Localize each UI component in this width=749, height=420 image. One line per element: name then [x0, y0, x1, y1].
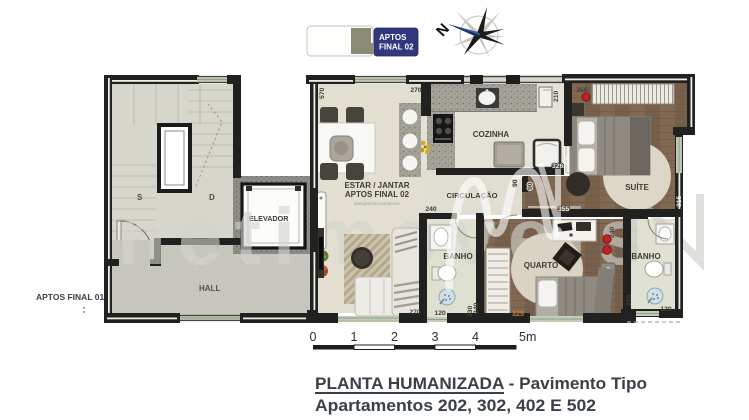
svg-text:Apartamentos 202, 302, 402 E 5: Apartamentos 202, 302, 402 E 502 [315, 396, 596, 415]
svg-text:FINAL 02: FINAL 02 [379, 43, 414, 52]
svg-text:120: 120 [660, 306, 672, 313]
svg-text:APTOS: APTOS [379, 33, 407, 42]
svg-text:570: 570 [319, 87, 326, 99]
svg-text:QUARTO: QUARTO [524, 261, 559, 270]
svg-text:240: 240 [425, 206, 437, 213]
svg-text:APTOS FINAL 01: APTOS FINAL 01 [36, 292, 104, 302]
svg-text:270: 270 [410, 87, 422, 94]
svg-text:90: 90 [527, 182, 534, 190]
svg-text:HALL: HALL [199, 284, 220, 293]
svg-text:325: 325 [512, 309, 524, 318]
svg-text:2: 2 [391, 330, 398, 344]
svg-text:255: 255 [576, 87, 588, 94]
svg-text:90: 90 [512, 179, 519, 187]
svg-text:PLANTA HUMANIZADA - Pavimento: PLANTA HUMANIZADA - Pavimento Tipo [315, 374, 647, 393]
svg-text:225: 225 [626, 294, 633, 306]
svg-text:SUÍTE: SUÍTE [625, 183, 649, 192]
svg-text:COZINHA: COZINHA [473, 130, 510, 139]
svg-text:355: 355 [558, 206, 570, 213]
svg-text:315: 315 [676, 195, 683, 207]
svg-text:3: 3 [432, 330, 439, 344]
svg-text:0: 0 [310, 330, 317, 344]
svg-text:CIRCULAÇÃO: CIRCULAÇÃO [446, 191, 497, 200]
svg-text:210: 210 [553, 90, 560, 102]
svg-text:270: 270 [409, 309, 421, 316]
svg-text:aeecpaeotcceaotteoec: aeecpaeotcceaotteoec [354, 201, 401, 206]
svg-text:240: 240 [473, 302, 480, 314]
svg-text:225: 225 [564, 154, 571, 166]
svg-text:BANHO: BANHO [631, 252, 660, 261]
svg-text:ESTAR / JANTAR: ESTAR / JANTAR [344, 181, 409, 190]
svg-text:5m: 5m [519, 330, 536, 344]
svg-text:240: 240 [609, 226, 616, 238]
svg-text:230: 230 [467, 305, 474, 317]
svg-text:APTOS FINAL 02: APTOS FINAL 02 [345, 190, 410, 199]
svg-text:1: 1 [351, 330, 358, 344]
svg-text:4: 4 [472, 330, 479, 344]
svg-text:120: 120 [434, 310, 446, 317]
svg-text:326: 326 [552, 163, 564, 170]
